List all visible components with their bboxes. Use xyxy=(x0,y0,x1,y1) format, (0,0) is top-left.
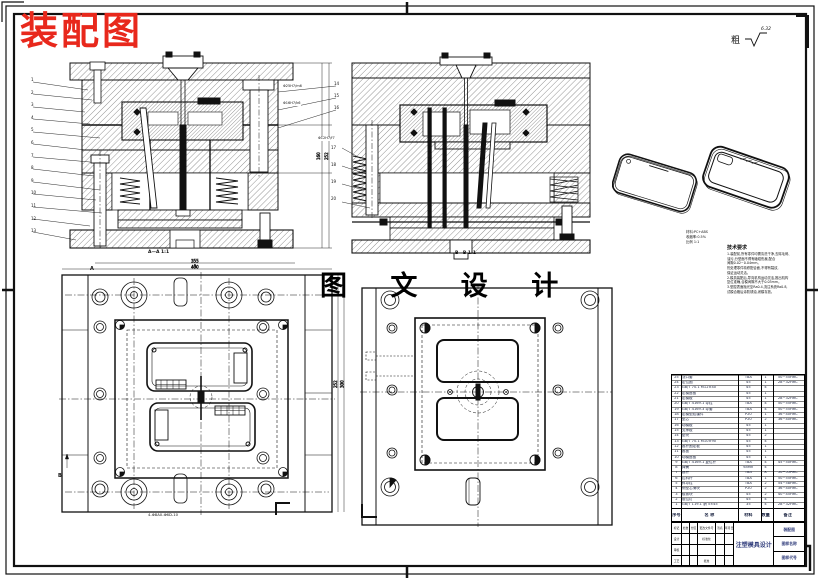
part-note: 50~55HRC xyxy=(771,477,804,481)
part-name: 垫块 xyxy=(681,434,737,438)
part-material: T8A xyxy=(737,461,760,465)
mold-plates-b xyxy=(352,63,590,253)
part-name: GB/T 119.1 销 5×45 xyxy=(681,503,737,507)
process-row: 工艺批准 xyxy=(672,556,733,566)
drawing-name-label: 图样名称 xyxy=(774,537,804,551)
part-note: 50~55HRC xyxy=(771,402,804,406)
balloon-numbers-left: 12345678910111213 xyxy=(31,78,36,242)
plate-outline-b xyxy=(362,288,612,525)
plan-view-a: 355 400 252 300 xyxy=(55,258,347,520)
part-material: 45 xyxy=(737,434,760,438)
cavity-insert-b xyxy=(400,105,547,149)
part-number: 15 xyxy=(672,429,681,433)
title-block-revision-grid: 标记处数分区更改文件号签名年月日 设计标准化 审核 工艺批准 xyxy=(672,523,734,565)
part-number: 11 xyxy=(672,450,681,454)
part-material: 45 xyxy=(737,386,760,390)
part-name: 推杆 xyxy=(681,471,737,475)
part-name: 浇口套 xyxy=(681,376,737,380)
runner-sprue-a xyxy=(190,376,212,420)
finish-prefix: 粗 xyxy=(731,33,740,46)
balloon-number: 13 xyxy=(31,229,36,242)
callout-chip xyxy=(198,98,220,104)
part-number: 10 xyxy=(672,456,681,460)
part-name: GB/T 4169.3 导套 xyxy=(681,408,737,412)
part-name: 型芯 xyxy=(681,418,737,422)
phone-case-views xyxy=(612,138,812,236)
part-note: 28~32HRC xyxy=(771,503,804,507)
part-number: 6 xyxy=(672,477,681,481)
part-number: 18 xyxy=(672,413,681,417)
design-cell: 设计 xyxy=(672,534,682,544)
process-cell: 批准 xyxy=(698,556,716,566)
part-note: 36~40HRC xyxy=(771,413,804,417)
part-note: 50~55HRC xyxy=(771,408,804,412)
part-name: GB/T 4169.1 复位杆 xyxy=(681,461,737,465)
part-name: 推板 xyxy=(681,450,737,454)
part-name: GB/T 4169.1 导柱 xyxy=(681,402,737,406)
part-material: 45 xyxy=(737,392,760,396)
balloon-number: 1 xyxy=(31,78,36,91)
part-number: 19 xyxy=(672,408,681,412)
plate-outline-a xyxy=(62,275,332,512)
watermark-text: 图 文 设 计 xyxy=(320,264,575,303)
phone-case-back-view xyxy=(700,144,794,213)
balloon-number: 17 xyxy=(331,146,336,163)
holes-b xyxy=(381,291,599,496)
check-cell xyxy=(716,545,725,555)
part-material: 45 xyxy=(737,493,760,497)
revision-cell: 处数 xyxy=(682,523,690,533)
part-note: 54~58HRC xyxy=(771,482,804,486)
part-name: 定模座板 xyxy=(681,392,737,396)
part-number: 13 xyxy=(672,440,681,444)
check-cell xyxy=(690,545,698,555)
balloon-number: 19 xyxy=(331,180,336,197)
part-material-note: 材料:PC+ABS收缩率:0.5%比例 1:1 xyxy=(686,230,730,245)
side-pulls-b xyxy=(366,352,480,505)
leader-lines-a-right xyxy=(278,86,336,128)
check-cell: 审核 xyxy=(672,545,682,555)
balloon-numbers-b: 17181920 xyxy=(331,146,336,214)
cavity-upper-a xyxy=(147,343,252,391)
revision-header-row: 标记处数分区更改文件号签名年月日 xyxy=(672,523,733,534)
balloon-number: 6 xyxy=(31,141,36,154)
svg-text:355: 355 xyxy=(191,259,199,264)
process-cell xyxy=(690,556,698,566)
part-number: 23 xyxy=(672,386,681,390)
drawing-code-label: 图样代号 xyxy=(774,552,804,565)
callout-chip xyxy=(495,100,515,106)
revision-cell: 签名 xyxy=(716,523,725,533)
header-name: 名 称 xyxy=(681,513,737,517)
balloon-number: 8 xyxy=(31,166,36,179)
part-number: 17 xyxy=(672,418,681,422)
part-name: 拉料杆 xyxy=(681,477,737,481)
part-material: T8A xyxy=(737,471,760,475)
part-material: P20 xyxy=(737,418,760,422)
header-material: 材料 xyxy=(737,513,760,517)
tech-req-lines: 1.装配前,所有零件均需清洗干净,去除毛刺、油污,分型面不得有磕碰伤痕,配合间隙… xyxy=(727,252,803,294)
revision-cell: 年月日 xyxy=(725,523,733,533)
balloon-numbers-right: 141516 xyxy=(334,82,339,118)
part-number: 20 xyxy=(672,402,681,406)
title-block-labels: 装配图 图样名称 图样代号 xyxy=(774,523,804,565)
part-material: T8A xyxy=(737,376,760,380)
part-material: 45 xyxy=(737,456,760,460)
revision-cell: 分区 xyxy=(690,523,698,533)
roughness-check-icon xyxy=(742,30,768,48)
part-note: 50~55HRC xyxy=(771,376,804,380)
design-cell: 标准化 xyxy=(698,534,716,544)
revision-cell: 更改文件号 xyxy=(698,523,716,533)
part-name: GB/T 70.1 M10×90 xyxy=(681,440,737,444)
part-material: 45 xyxy=(737,450,760,454)
part-name: 推杆固定板 xyxy=(681,445,737,449)
datum-a-left: A xyxy=(90,266,94,272)
part-material: 45 xyxy=(737,445,760,449)
datum-a-right: A xyxy=(193,264,197,270)
drawing-sheet: 160 252 xyxy=(0,0,820,580)
fit-callout-3: Φ12H7/f7 xyxy=(318,137,335,141)
section-a-label: A—A 1:1 xyxy=(148,250,169,255)
phone-front-view xyxy=(612,152,700,216)
finish-value: 6.32 xyxy=(761,27,771,32)
section-b-label: B—B 1:1 xyxy=(455,251,476,256)
part-note: 28~32HRC xyxy=(771,381,804,385)
part-name: 支承板 xyxy=(681,429,737,433)
part-material: T8A xyxy=(737,402,760,406)
design-row: 设计标准化 xyxy=(672,534,733,545)
tech-req-line: 试模合格后涂防锈油,闭模存放。 xyxy=(727,290,803,295)
part-number: 14 xyxy=(672,434,681,438)
part-material: 45 xyxy=(737,440,760,444)
design-cell xyxy=(682,534,690,544)
part-number: 12 xyxy=(672,445,681,449)
part-material: 45 xyxy=(737,498,760,502)
cavity-lower-a xyxy=(150,403,255,451)
assembly-drawing-stamp: 装配图 xyxy=(20,12,143,50)
part-name: 动模板 xyxy=(681,424,737,428)
part-material: T8A xyxy=(737,408,760,412)
part-note: 36~40HRC xyxy=(771,487,804,491)
plan-dim-note: 4-Φ8A0-Φ6D-10 xyxy=(148,512,178,517)
part-number: 1 xyxy=(672,503,681,507)
part-material: 45 xyxy=(737,429,760,433)
section-view-a: 160 252 xyxy=(30,50,340,262)
part-name: 定位圈 xyxy=(681,381,737,385)
revision-cell: 标记 xyxy=(672,523,682,533)
tech-req-title: 技术要求 xyxy=(727,244,803,251)
fit-callout-1: Φ25H7/m6 xyxy=(283,85,302,89)
design-cell xyxy=(725,534,733,544)
part-material: 65Mn xyxy=(737,466,760,470)
part-number: 8 xyxy=(672,466,681,470)
surface-finish-mark: 粗 6.32 xyxy=(731,30,768,48)
part-material: T8A xyxy=(737,477,760,481)
part-material: P20 xyxy=(737,487,760,491)
part-number: 9 xyxy=(672,461,681,465)
project-title: 注塑模具设计 xyxy=(734,523,774,565)
title-block: 标记处数分区更改文件号签名年月日 设计标准化 审核 工艺批准 注塑模具设计 装配… xyxy=(671,522,805,566)
tech-req-line: 1.装配前,所有零件均需清洗干净,去除毛刺、 xyxy=(727,252,803,257)
process-cell xyxy=(682,556,690,566)
part-name: 定模型腔镶件 xyxy=(681,413,737,417)
part-number: 5 xyxy=(672,482,681,486)
plan-view-b xyxy=(358,280,614,530)
part-number: 24 xyxy=(672,381,681,385)
drawing-type-label: 装配图 xyxy=(774,523,804,537)
part-name: 楔紧块 xyxy=(681,493,737,497)
balloon-number: 11 xyxy=(31,204,36,217)
part-number: 7 xyxy=(672,471,681,475)
part-note: 50~55HRC xyxy=(771,471,804,475)
svg-text:300: 300 xyxy=(340,380,345,388)
check-cell xyxy=(682,545,690,555)
section-view-b xyxy=(340,48,596,266)
svg-text:160: 160 xyxy=(316,152,321,160)
part-material: P20 xyxy=(737,413,760,417)
fit-callout-2: Φ16H7/k6 xyxy=(283,102,301,106)
svg-text:252: 252 xyxy=(324,152,329,160)
design-cell xyxy=(690,534,698,544)
part-number: 16 xyxy=(672,424,681,428)
part-number: 4 xyxy=(672,487,681,491)
check-cell xyxy=(698,545,716,555)
header-note: 备注 xyxy=(771,513,804,517)
part-number: 2 xyxy=(672,498,681,502)
process-cell: 工艺 xyxy=(672,556,682,566)
process-cell xyxy=(716,556,725,566)
part-note: 36~40HRC xyxy=(771,418,804,422)
part-note: 40~45HRC xyxy=(771,493,804,497)
part-name: GB/T 70.1 M12×40 xyxy=(681,386,737,390)
part-number: 25 xyxy=(672,376,681,380)
svg-text:252: 252 xyxy=(333,380,338,388)
note-line: 比例 1:1 xyxy=(686,240,730,245)
technical-requirements: 技术要求 1.装配前,所有零件均需清洗干净,去除毛刺、油污,分型面不得有磕碰伤痕… xyxy=(727,244,803,294)
balloon-number: 18 xyxy=(331,163,336,180)
check-row: 审核 xyxy=(672,545,733,556)
part-number: 22 xyxy=(672,392,681,396)
part-name: 弹簧 xyxy=(681,466,737,470)
balloon-number: 20 xyxy=(331,197,336,214)
part-material: 45 xyxy=(737,424,760,428)
process-cell xyxy=(725,556,733,566)
design-cell xyxy=(716,534,725,544)
part-name: 定模板 xyxy=(681,397,737,401)
balloon-number: 16 xyxy=(334,106,339,118)
balloon-number: 3 xyxy=(31,103,36,116)
part-note: 45~50HRC xyxy=(771,461,804,465)
dimension-lines-a: 160 252 xyxy=(278,63,332,248)
part-name: 动模座板 xyxy=(681,456,737,460)
datum-b: B xyxy=(58,473,62,479)
parts-list-table: 25 浇口套 T8A 1 50~55HRC 24 定位圈 45 1 28~32H… xyxy=(671,374,805,522)
dims-plan-a: 355 400 252 300 xyxy=(62,259,345,513)
check-cell xyxy=(725,545,733,555)
part-number: 3 xyxy=(672,493,681,497)
part-name: 限位钉 xyxy=(681,498,737,502)
part-material: 45 xyxy=(737,381,760,385)
part-material: T8A xyxy=(737,482,760,486)
part-name: 侧型芯滑块 xyxy=(681,487,737,491)
holes-a xyxy=(92,282,274,505)
part-name: 斜导柱 xyxy=(681,482,737,486)
part-note: 28~32HRC xyxy=(771,397,804,401)
header-no: 序号 xyxy=(672,513,681,517)
part-material: 35 xyxy=(737,503,760,507)
part-number: 21 xyxy=(672,397,681,401)
part-material: 45 xyxy=(737,397,760,401)
